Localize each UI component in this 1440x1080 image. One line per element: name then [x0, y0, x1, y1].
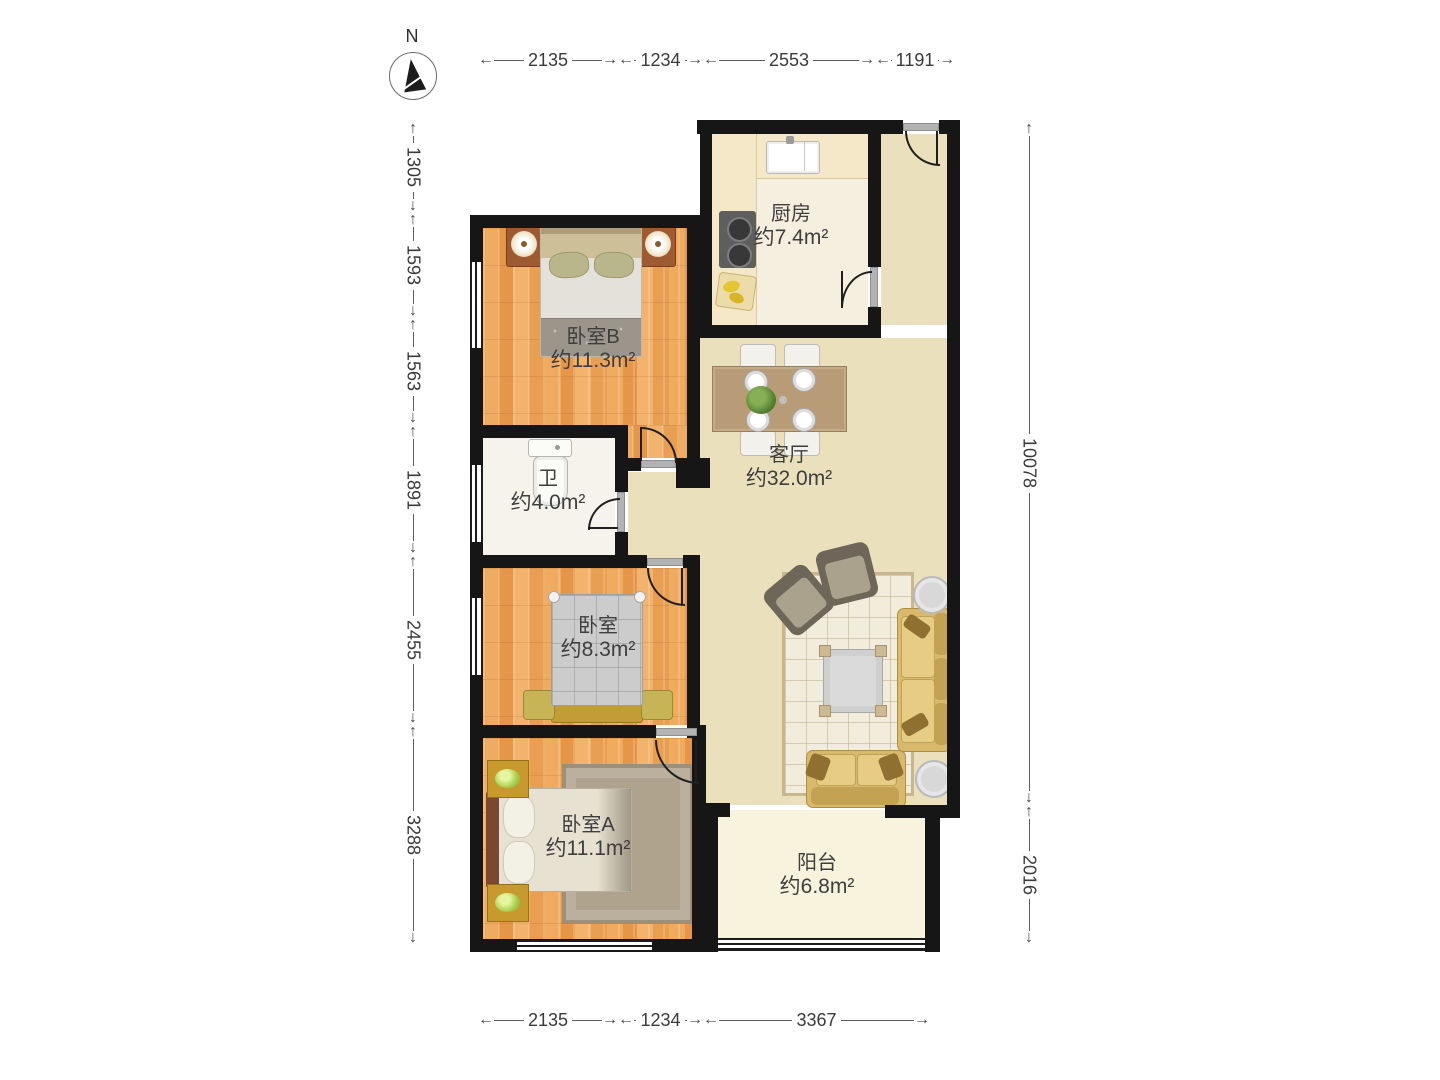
compass-north-label: N — [384, 26, 440, 47]
wall-bedroom-mid-right — [687, 555, 700, 738]
dim-left-seg-1: ↑1305↓ — [402, 122, 424, 213]
balcony-label: 阳台 约6.8m² — [780, 852, 855, 899]
arrow-left-icon: ← — [703, 50, 719, 70]
arrow-up-icon: ↑ — [409, 425, 417, 439]
bathroom-area: 约4.0m² — [511, 490, 586, 515]
arrow-down-icon: ↓ — [1025, 931, 1033, 945]
window-balcony-rail — [718, 938, 925, 951]
dimension-bottom: ←2135→ ←1234→ ←3367→ — [478, 1010, 930, 1030]
dim-left-seg-3: ↑1563↓ — [402, 318, 424, 425]
window-bedroom-a — [517, 940, 652, 951]
bedroom-b-area: 约11.3m² — [551, 348, 636, 373]
kitchen-label: 厨房 约7.4m² — [754, 203, 829, 250]
arrow-up-icon: ↑ — [409, 725, 417, 739]
dim-value: 10078 — [1019, 434, 1040, 492]
coffee-table — [823, 649, 883, 713]
bedroom-a-nightstand-bottom — [487, 884, 529, 922]
dim-value: 3288 — [403, 811, 424, 859]
bed-mid-knob-right — [634, 591, 646, 603]
dimension-left: ↑1305↓ ↑1593↓ ↑1563↓ ↑1891↓ ↑2455↓ ↑3288… — [402, 122, 424, 945]
toilet-tank — [528, 439, 572, 457]
dim-value: 3367 — [792, 1010, 840, 1031]
floorplan-canvas: 厨房 约7.4m² 卧室B 约11.3m² 卫 约4.0m² 客厅 约32.0m… — [0, 0, 1440, 1080]
bedroom-a-nightstand-top — [487, 760, 529, 798]
side-table-top — [913, 576, 951, 614]
lamp-green-bottom — [495, 893, 520, 912]
lamp-green-top — [495, 769, 520, 788]
wall-kitchen-entry-upper — [868, 134, 881, 267]
bed-a-pillow-2 — [503, 841, 535, 884]
balcony-name: 阳台 — [780, 852, 855, 874]
wall-bedroom-b-top — [470, 215, 700, 228]
arrow-up-icon: ↑ — [409, 555, 417, 569]
dim-value: 2135 — [524, 50, 572, 71]
dim-value: 1563 — [403, 347, 424, 395]
bedroom-mid-label: 卧室 约8.3m² — [561, 615, 636, 662]
bed-a-pillow-1 — [503, 795, 535, 838]
wall-bathroom-right-lower — [615, 532, 628, 555]
dimension-right: ↑10078↓ ↑2016↓ — [1018, 122, 1040, 945]
window-bedroom-b — [470, 262, 483, 348]
bed-b-pillow-2 — [594, 251, 635, 278]
bedroom-a-door-jamb — [656, 728, 697, 736]
stove-burner-bottom — [727, 243, 752, 268]
bedroom-b-door-leaf — [640, 427, 642, 461]
loveseat — [806, 750, 906, 808]
stove-burner-top — [727, 217, 752, 242]
arrow-left-icon: ← — [875, 50, 891, 70]
wall-bedroom-b-right — [687, 215, 700, 458]
wall-balcony-right — [925, 805, 940, 952]
arrow-up-icon: ↑ — [409, 122, 417, 136]
wall-top-kitchen — [697, 120, 903, 134]
kitchen-door-leaf — [841, 271, 843, 306]
dim-left-seg-4: ↑1891↓ — [402, 425, 424, 555]
arrow-left-icon: ← — [703, 1010, 719, 1030]
bedroom-b-label: 卧室B 约11.3m² — [551, 326, 636, 373]
dim-value: 1234 — [636, 50, 684, 71]
loveseat-back — [811, 787, 899, 805]
bedroom-a-door-leaf — [695, 740, 697, 782]
window-bathroom — [470, 465, 483, 542]
living-name: 客厅 — [746, 444, 832, 466]
dim-bottom-seg-2: ←1234→ — [618, 1010, 703, 1030]
window-bedroom-mid — [470, 598, 483, 675]
kitchen-area: 约7.4m² — [754, 225, 829, 250]
bathroom-name: 卫 — [511, 468, 586, 490]
kitchen-faucet-icon — [786, 136, 794, 144]
bedroom-mid-door-jamb — [647, 558, 683, 566]
dim-value: 2016 — [1019, 851, 1040, 899]
wall-bedroom-mid-top-left — [470, 555, 647, 568]
dim-value: 1305 — [403, 143, 424, 191]
arrow-right-icon: → — [859, 50, 875, 70]
arrow-right-icon: → — [914, 1010, 930, 1030]
arrow-left-icon: ← — [478, 50, 494, 70]
dim-value: 1891 — [403, 466, 424, 514]
dim-left-seg-2: ↑1593↓ — [402, 213, 424, 318]
dimension-top: ←2135→ ←1234→ ←2553→ ←1191→ — [478, 50, 955, 70]
bedroom-a-name: 卧室A — [546, 814, 631, 836]
wall-bathroom-top — [470, 425, 628, 438]
wall-kitchen-left — [700, 134, 712, 338]
plate-4 — [792, 408, 816, 432]
dim-right-seg-2: ↑2016↓ — [1018, 805, 1040, 945]
arrow-up-icon: ↑ — [1025, 805, 1033, 819]
arrow-right-icon: → — [602, 50, 618, 70]
dim-top-seg-2: ←1234→ — [618, 50, 703, 70]
wall-hall-pier — [676, 458, 710, 488]
dim-bottom-seg-3: ←3367→ — [703, 1010, 930, 1030]
arrow-down-icon: ↓ — [409, 931, 417, 945]
balcony-area: 约6.8m² — [780, 874, 855, 899]
bedroom-mid-name: 卧室 — [561, 615, 636, 637]
wall-balcony-left — [700, 810, 718, 952]
arrow-up-icon: ↑ — [409, 318, 417, 332]
dim-value: 1191 — [892, 50, 939, 71]
table-centerpiece — [779, 396, 787, 404]
bedroom-mid-area: 约8.3m² — [561, 637, 636, 662]
sofa — [897, 608, 951, 752]
dim-right-seg-1: ↑10078↓ — [1018, 122, 1040, 805]
wall-kitchen-entry-lower — [868, 307, 881, 338]
arrow-left-icon: ← — [618, 1010, 634, 1030]
dim-top-seg-4: ←1191→ — [875, 50, 955, 70]
dim-value: 2135 — [524, 1010, 572, 1031]
entry-door-leaf — [936, 131, 938, 164]
kitchen-sink-divider — [804, 142, 805, 171]
lamp-dot-left — [521, 241, 527, 247]
arrow-right-icon: → — [687, 50, 703, 70]
bathroom-door-leaf — [588, 527, 618, 529]
compass: N — [384, 26, 440, 100]
bedroom-mid-door-leaf — [681, 568, 683, 604]
arrow-left-icon: ← — [478, 1010, 494, 1030]
bed-mid-knob-left — [548, 591, 560, 603]
dim-value: 1234 — [636, 1010, 684, 1031]
bedroom-a-area: 约11.1m² — [546, 836, 631, 861]
dim-value: 2553 — [765, 50, 813, 71]
armchair-2-seat — [824, 555, 872, 601]
living-area: 约32.0m² — [746, 466, 832, 491]
arrow-right-icon: → — [939, 50, 955, 70]
table-plant — [746, 386, 776, 414]
wall-bedroom-a-top-right — [697, 725, 706, 738]
kitchen-name: 厨房 — [754, 203, 829, 225]
plate-2 — [792, 368, 816, 392]
entry-door-jamb — [903, 123, 939, 131]
arrow-left-icon: ← — [618, 50, 634, 70]
bed-b-pillow-1 — [548, 251, 589, 279]
coffee-table-foot-3 — [819, 705, 831, 717]
living-label: 客厅 约32.0m² — [746, 444, 832, 491]
wall-kitchen-bottom — [700, 325, 881, 338]
dim-value: 1593 — [403, 241, 424, 289]
arrow-right-icon: → — [687, 1010, 703, 1030]
bathroom-label: 卫 约4.0m² — [511, 468, 586, 515]
coffee-table-foot-2 — [875, 645, 887, 657]
coffee-table-foot-4 — [875, 705, 887, 717]
dim-value: 2455 — [403, 616, 424, 664]
bedroom-a-label: 卧室A 约11.1m² — [546, 814, 631, 861]
compass-icon — [389, 52, 437, 100]
dim-left-seg-6: ↑3288↓ — [402, 725, 424, 945]
toilet-button — [555, 445, 560, 450]
lamp-dot-right — [655, 241, 661, 247]
arrow-up-icon: ↑ — [1025, 122, 1033, 136]
wall-bedroom-a-top-left — [470, 725, 656, 738]
wall-right-outer — [947, 120, 960, 818]
arrow-up-icon: ↑ — [409, 213, 417, 227]
bedroom-a-headboard — [486, 792, 499, 887]
dim-top-seg-3: ←2553→ — [703, 50, 875, 70]
bedroom-mid-nightstand-right — [641, 690, 673, 720]
cutting-board — [715, 272, 758, 312]
arrow-right-icon: → — [602, 1010, 618, 1030]
coffee-table-foot-1 — [819, 645, 831, 657]
wall-bathroom-right-upper — [615, 438, 628, 492]
dim-bottom-seg-1: ←2135→ — [478, 1010, 618, 1030]
dim-top-seg-1: ←2135→ — [478, 50, 618, 70]
kitchen-sink — [766, 141, 820, 174]
dim-left-seg-5: ↑2455↓ — [402, 555, 424, 725]
bedroom-b-name: 卧室B — [551, 326, 636, 348]
